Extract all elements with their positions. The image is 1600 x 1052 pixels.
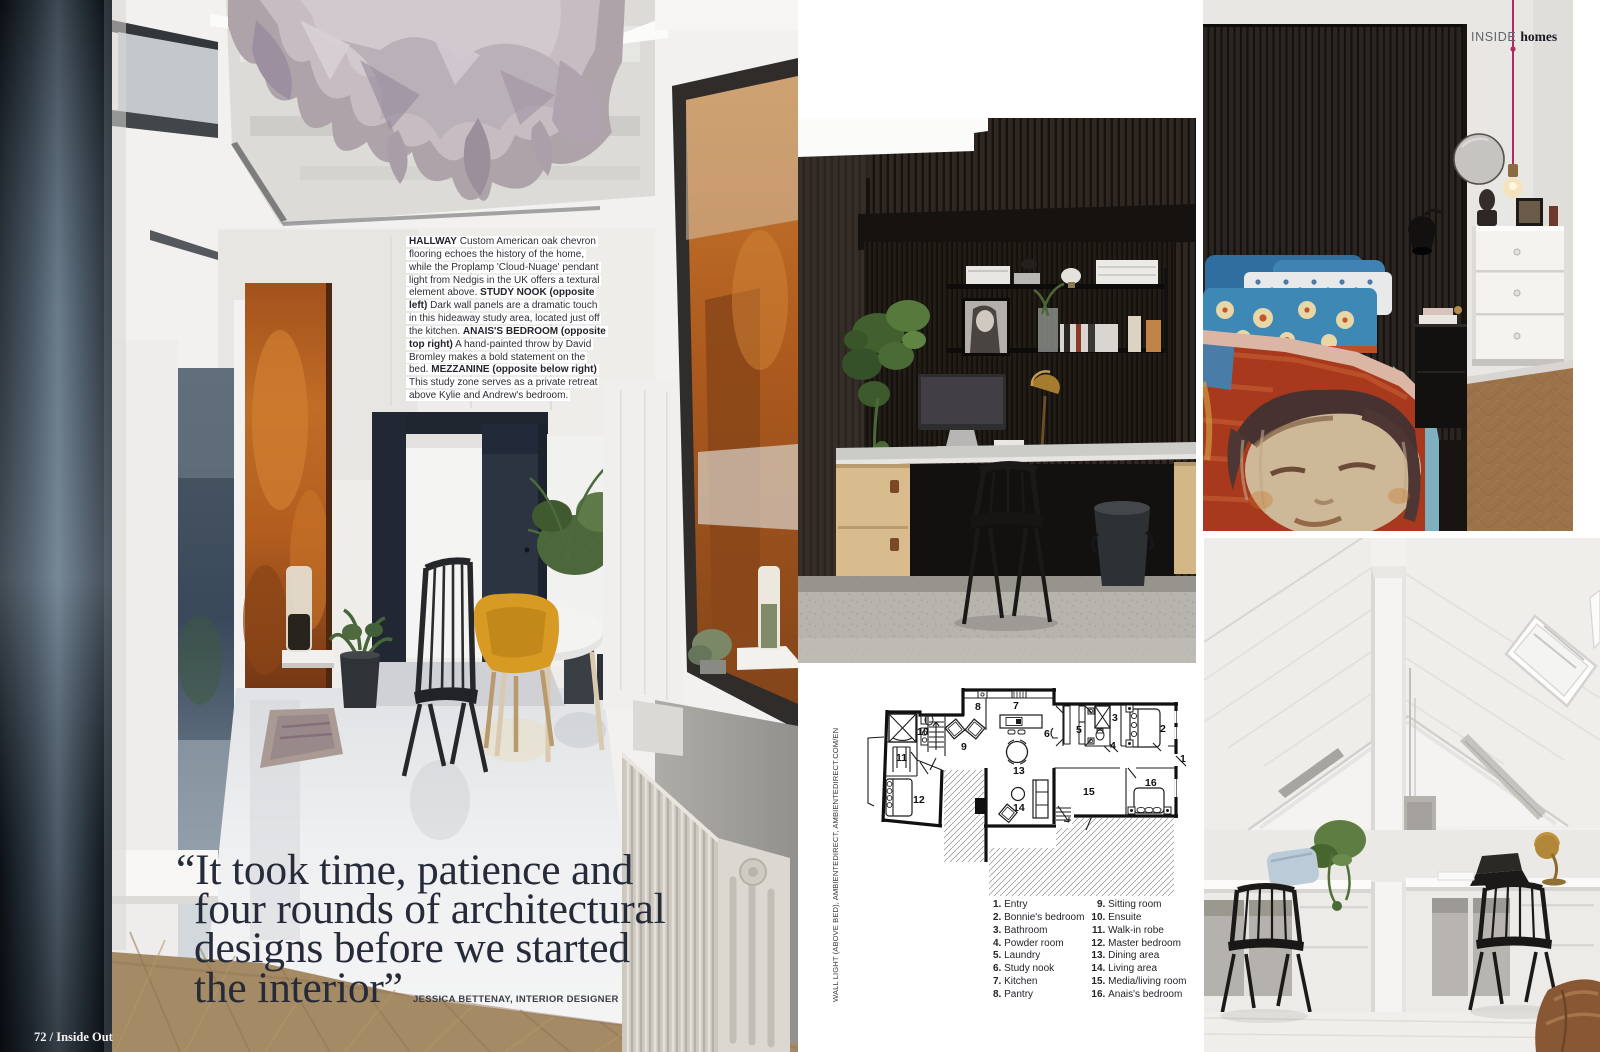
svg-text:7: 7 [1013, 700, 1019, 712]
svg-text:9: 9 [961, 741, 967, 753]
svg-text:3: 3 [1112, 712, 1118, 724]
svg-text:14: 14 [1013, 802, 1025, 814]
svg-text:15: 15 [1083, 786, 1095, 798]
svg-text:5: 5 [1076, 724, 1082, 736]
svg-text:2: 2 [1160, 723, 1166, 735]
svg-text:10: 10 [917, 726, 929, 738]
svg-text:13: 13 [1013, 765, 1025, 777]
svg-text:16: 16 [1145, 777, 1157, 789]
svg-text:4: 4 [1110, 740, 1116, 752]
svg-text:6: 6 [1044, 728, 1050, 740]
svg-text:11: 11 [896, 752, 907, 764]
svg-text:8: 8 [975, 701, 981, 713]
svg-text:12: 12 [913, 794, 925, 806]
svg-text:1: 1 [1180, 753, 1186, 765]
